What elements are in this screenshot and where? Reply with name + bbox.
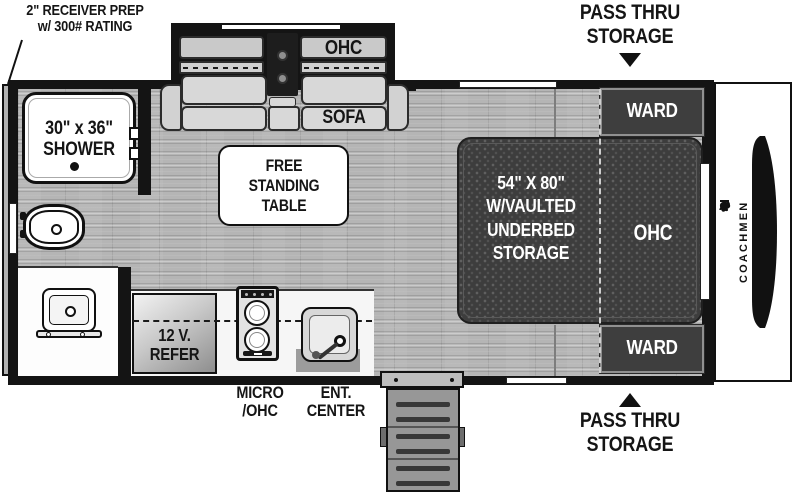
slideout-endwall: [160, 84, 182, 131]
arrow-down-icon: [619, 53, 641, 67]
floorplan-canvas: 2" RECEIVER PREP w/ 300# RATING PASS THR…: [0, 0, 800, 492]
entry-platform: [380, 371, 464, 388]
toilet-hinge: [20, 212, 26, 220]
ward-label: WARD: [626, 101, 677, 123]
entry-steps: [386, 388, 460, 492]
free-standing-table: FREE STANDING TABLE: [218, 145, 349, 226]
bathroom-wall: [118, 267, 131, 376]
shower-door-hinge: [129, 127, 140, 140]
window-front: [700, 163, 710, 300]
ohc-label: OHC: [307, 38, 381, 60]
brand-block: COACHMEN: [716, 186, 754, 298]
shower-pan: 30" x 36" SHOWER: [22, 92, 136, 184]
micro-ohc-label: MICRO /OHC: [230, 384, 290, 420]
arrow-up-icon: [619, 393, 641, 407]
sofa-fold-strip: [300, 61, 387, 74]
knob: [46, 332, 51, 337]
shower-drain: [70, 162, 79, 171]
ward-label: WARD: [626, 338, 677, 360]
stove-knob-strip: [241, 290, 274, 298]
toilet-hinge: [20, 230, 26, 238]
front-cap-profile: [750, 135, 780, 329]
sofa-console: [267, 33, 298, 96]
slideout-endwall: [387, 84, 409, 131]
refer-label: 12 V. REFER: [138, 326, 210, 365]
console-cushion: [269, 97, 296, 107]
cupholder: [277, 73, 288, 84]
toilet: [23, 204, 85, 250]
med-cab-sink: [42, 288, 96, 332]
burner: [244, 300, 270, 326]
sofa-fold-strip: [179, 61, 264, 74]
cooktop: [236, 286, 279, 361]
pass-thru-storage-label-top: PASS THRU STORAGE: [576, 1, 685, 50]
pass-thru-storage-label-bottom: PASS THRU STORAGE: [576, 409, 685, 458]
knob: [80, 332, 85, 337]
table-label: FREE STANDING TABLE: [234, 157, 334, 216]
ohc-dashed-line: [599, 89, 601, 373]
window-bottom: [506, 377, 567, 384]
receiver-prep-note: 2" RECEIVER PREP w/ 300# RATING: [13, 3, 158, 35]
window-top: [459, 81, 557, 88]
window-rear: [9, 203, 17, 254]
leader-line: [2, 36, 26, 88]
slideout-window: [222, 25, 340, 29]
faucet-knob: [312, 351, 320, 359]
wardrobe-top: WARD: [600, 88, 704, 136]
shower-label: 30" x 36" SHOWER: [37, 119, 122, 160]
floor-seam: [554, 89, 556, 138]
ent-center-sink: [301, 307, 358, 362]
sofa-cushion: [181, 106, 267, 131]
brand-name: COACHMEN: [734, 186, 754, 298]
wall-bottom: [8, 376, 714, 385]
bathroom-counter-edge: [18, 266, 118, 268]
cupholder: [277, 50, 288, 61]
shower-door-hinge: [129, 147, 140, 160]
bed-label: 54" X 80" W/VAULTED UNDERBED STORAGE: [469, 171, 593, 265]
overhead-cabinet: [179, 36, 264, 59]
ent-center-label: ENT. CENTER: [305, 384, 368, 420]
sofa-cushion: [268, 106, 300, 131]
sofa-seatback: [181, 75, 267, 105]
toilet-drain: [51, 224, 62, 235]
burner: [244, 327, 270, 353]
wardrobe-bottom: WARD: [600, 325, 704, 373]
bed-ohc-label: OHC: [613, 221, 693, 245]
sink-drain: [65, 306, 76, 317]
sofa-seatback: [301, 75, 387, 105]
floor-seam: [554, 325, 556, 376]
bathroom-wall: [138, 88, 151, 195]
sofa-label: SOFA: [307, 108, 380, 129]
oven-handle: [243, 351, 272, 356]
